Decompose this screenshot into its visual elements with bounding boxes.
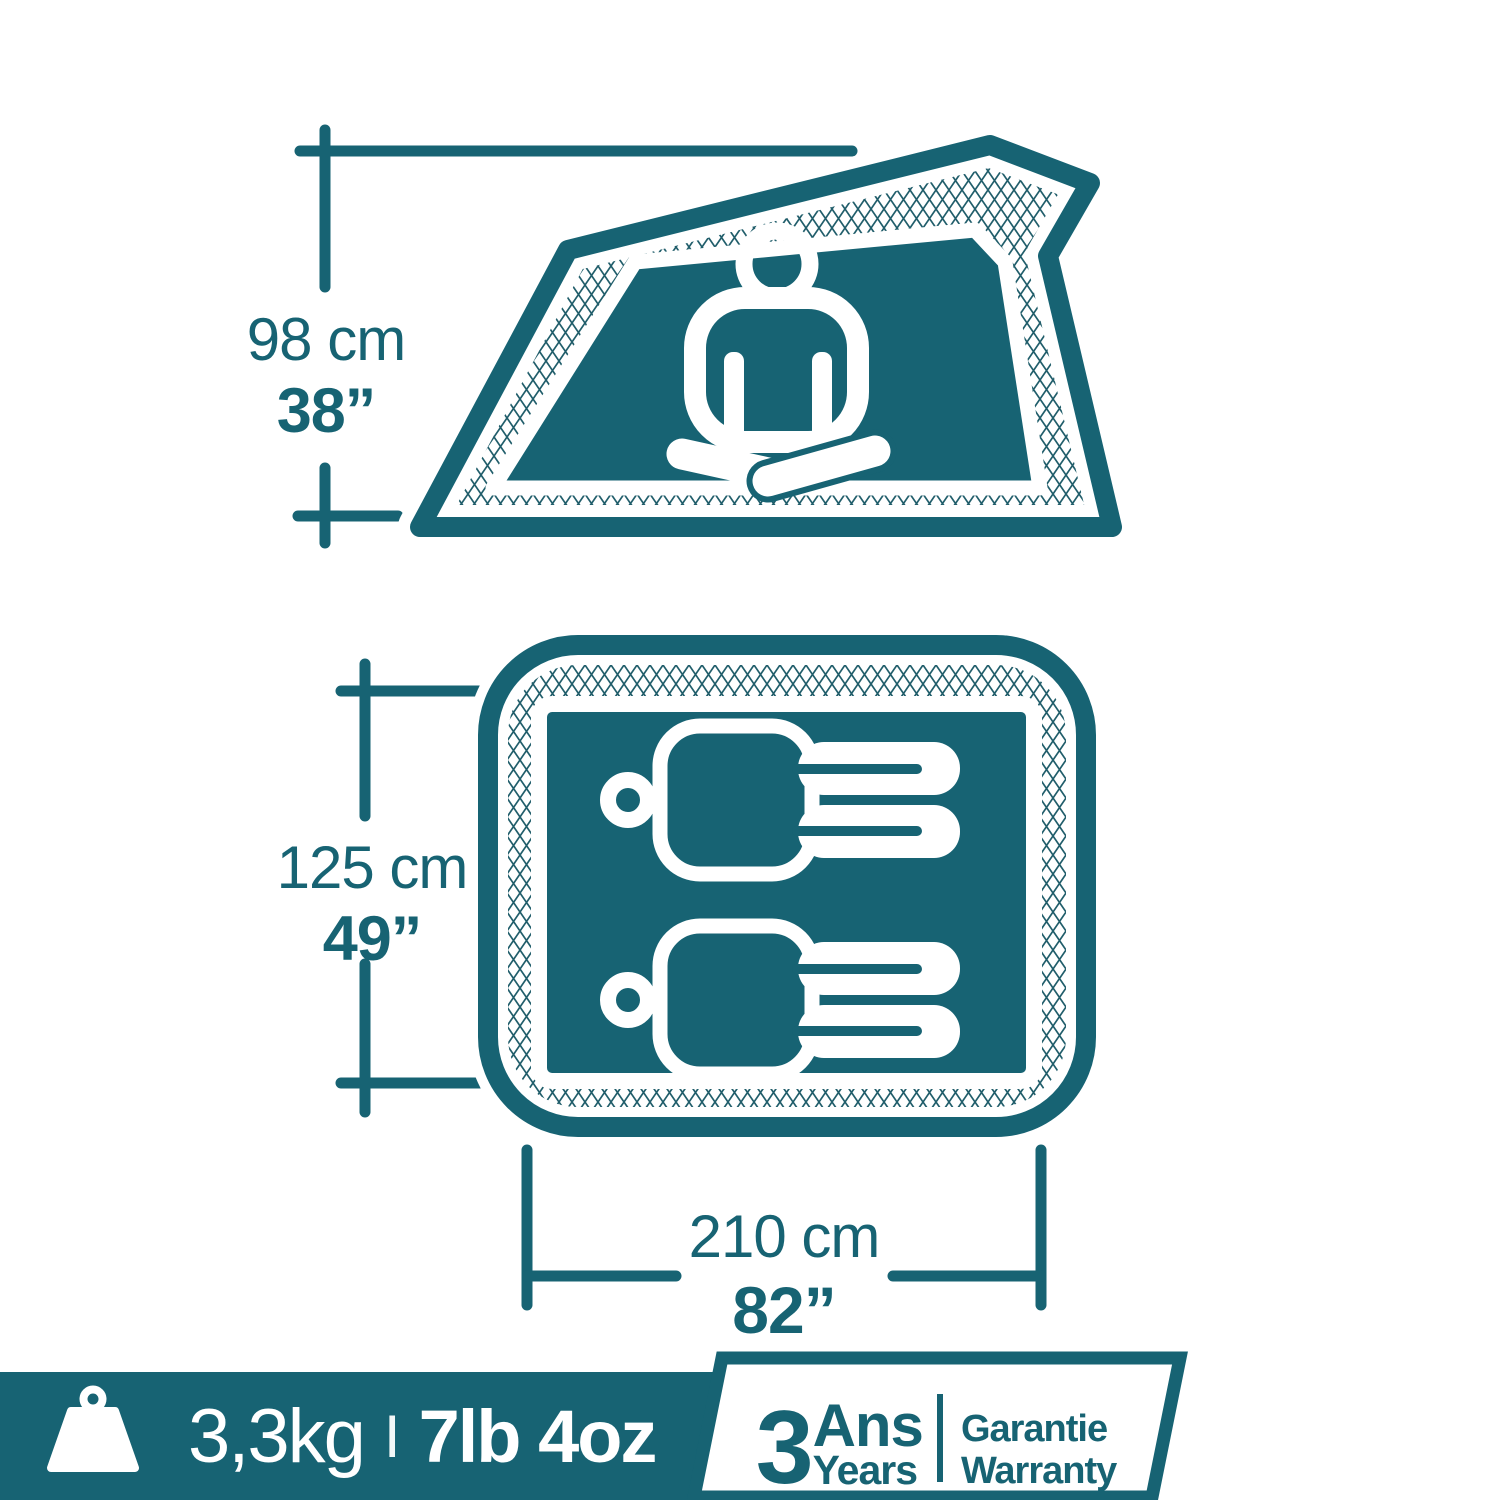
warranty-badge: 3 Ans Years Garantie Warranty — [706, 1368, 1166, 1484]
weight-label: 3,3kg I 7lb 4oz — [188, 1372, 655, 1500]
warranty-years-fr: Ans — [813, 1401, 923, 1450]
length-imperial-value: 82” — [689, 1277, 880, 1343]
tent-side-view-shape — [420, 145, 1112, 527]
width-dimension-label: 125 cm 49” — [277, 838, 468, 971]
weight-metric-value: 3,3kg — [188, 1393, 364, 1480]
badge-divider — [937, 1394, 943, 1482]
length-dimension-label: 210 cm 82” — [689, 1207, 880, 1343]
warranty-years-number: 3 — [756, 1396, 813, 1500]
height-dimension-label: 98 cm 38” — [247, 310, 405, 443]
warranty-years-labels: Ans Years — [813, 1401, 923, 1491]
tent-spec-diagram: 98 cm 38” 125 cm 49” 210 cm 82” 3,3kg I … — [0, 0, 1500, 1500]
warranty-word-labels: Garantie Warranty — [961, 1410, 1116, 1490]
width-imperial-value: 49” — [277, 908, 468, 971]
length-metric-value: 210 cm — [689, 1207, 880, 1267]
weight-imperial-value: 7lb 4oz — [419, 1394, 656, 1479]
floor-plan-floor — [539, 704, 1034, 1081]
height-metric-value: 98 cm — [247, 310, 405, 370]
width-metric-value: 125 cm — [277, 838, 468, 898]
warranty-label-en: Warranty — [961, 1452, 1116, 1490]
weight-separator: I — [384, 1402, 399, 1471]
height-imperial-value: 38” — [247, 380, 405, 443]
tent-floor-plan-shape — [488, 645, 1086, 1127]
warranty-years-en: Years — [813, 1450, 917, 1491]
warranty-label-fr: Garantie — [961, 1410, 1107, 1448]
